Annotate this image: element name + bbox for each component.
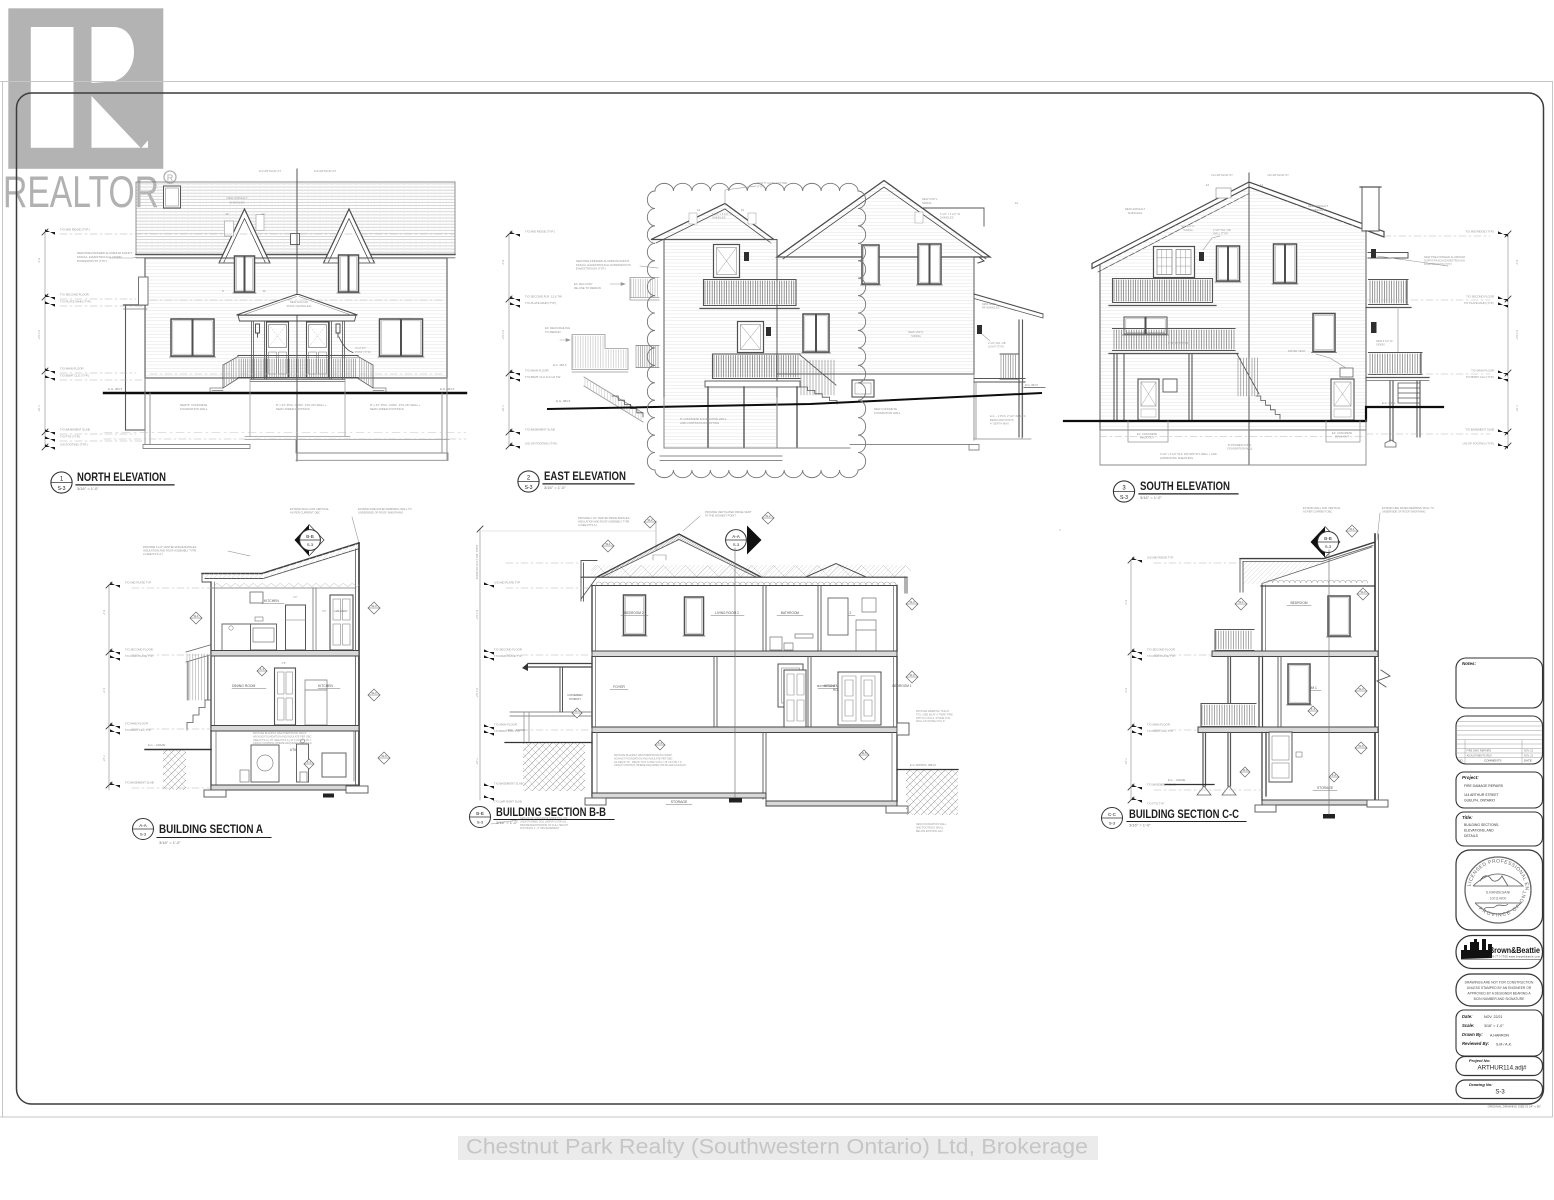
svg-text:4" DEPTH MAX: 4" DEPTH MAX [990, 422, 1009, 426]
svg-text:BEAM AND POSTS: BEAM AND POSTS [990, 418, 1014, 422]
svg-text:W-1: W-1 [1238, 600, 1244, 604]
svg-text:3 1/2" x 3 1/2" W.S. 2X6 SPF S: 3 1/2" x 3 1/2" W.S. 2X6 SPF STL WALL + … [1160, 452, 1217, 456]
svg-text:T/O MID PLATE TYP.: T/O MID PLATE TYP. [125, 581, 152, 585]
svg-text:BATHROOM: BATHROOM [817, 684, 835, 688]
svg-text:Drawing No:: Drawing No: [1469, 1082, 1493, 1087]
svg-text:NOV. 22: NOV. 22 [1524, 750, 1534, 753]
svg-text:WALL AS STONE COV. 6": WALL AS STONE COV. 6" [916, 720, 945, 723]
svg-text:DRYER VENT: DRYER VENT [1288, 349, 1306, 353]
svg-text:W-1: W-1 [605, 542, 611, 546]
svg-text:Project:: Project: [1462, 775, 1479, 780]
svg-text:W-1: W-1 [1349, 527, 1355, 531]
svg-text:7'-10": 7'-10" [1515, 405, 1519, 412]
svg-text:3'0": 3'0" [322, 609, 326, 613]
svg-text:T/O BASEMENT SLAB: T/O BASEMENT SLAB [525, 428, 555, 432]
svg-text:FOYER: FOYER [613, 685, 625, 689]
svg-text:WALK-OUT: WALK-OUT [1335, 435, 1349, 439]
svg-text:100114800: 100114800 [1490, 897, 1507, 901]
svg-text:NEW 5 1/2" W: NEW 5 1/2" W [1376, 339, 1393, 343]
svg-text:BEDROOM 2: BEDROOM 2 [624, 611, 643, 615]
svg-text:F-2: F-2 [658, 741, 663, 745]
svg-text:RE-USE TO REMAIN: RE-USE TO REMAIN [574, 286, 601, 290]
svg-text:BUILDING SECTION A: BUILDING SECTION A [159, 822, 263, 836]
svg-text:114 ARTHUR ST: 114 ARTHUR ST [1211, 173, 1233, 177]
svg-text:7'-10": 7'-10" [475, 758, 479, 765]
svg-text:R: R [167, 173, 174, 183]
svg-text:W-6: W-6 [1242, 768, 1248, 772]
svg-text:NEW ASPHALT: NEW ASPHALT [226, 196, 247, 200]
svg-text:EXTEND WALL FOR VERTICAL: EXTEND WALL FOR VERTICAL [1303, 506, 1341, 510]
svg-text:E.G. 384.5: E.G. 384.5 [553, 363, 567, 367]
svg-text:Date:: Date: [1462, 1014, 1473, 1019]
svg-text:NO.: NO. [1459, 759, 1464, 763]
svg-text:SIDING: SIDING [911, 334, 921, 338]
svg-text:T/O MAIN FLOOR: T/O MAIN FLOOR [494, 723, 517, 727]
svg-text:S-3: S-3 [140, 832, 147, 837]
svg-text:E.G. - 2 PCS. 2"x10" #2 S.P.F.: E.G. - 2 PCS. 2"x10" #2 S.P.F. [990, 414, 1026, 418]
svg-text:PROVIDE 5 1/2" VENTED RIDGE BA: PROVIDE 5 1/2" VENTED RIDGE BAFFLES [143, 545, 197, 549]
svg-text:Project No:: Project No: [1469, 1058, 1491, 1063]
svg-text:BUILDING SECTION C-C: BUILDING SECTION C-C [1129, 807, 1239, 821]
svg-text:EAVESTROUGH (TYP.): EAVESTROUGH (TYP.) [576, 267, 606, 271]
svg-text:SHINGLES: SHINGLES [229, 201, 244, 205]
svg-text:HALLWAY: HALLWAY [334, 609, 347, 613]
svg-text:PORCH: PORCH [569, 697, 580, 701]
svg-text:W-5: W-5 [1358, 744, 1364, 748]
svg-text:2'8": 2'8" [282, 661, 287, 665]
svg-text:T/O SECOND FLR. 12.6 TW: T/O SECOND FLR. 12.6 TW [525, 295, 562, 299]
svg-text:8'-1": 8'-1" [102, 610, 106, 615]
svg-text:T/O BASEMENT SLAB: T/O BASEMENT SLAB [494, 782, 523, 786]
svg-text:T/O LWR BSMT SLAB: T/O LWR BSMT SLAB [494, 800, 522, 804]
svg-text:6"x6" PT POSTS: 6"x6" PT POSTS [1168, 341, 1188, 345]
svg-text:3/16" = 1'-0": 3/16" = 1'-0" [1129, 823, 1151, 828]
svg-text:3/16" = 1'-0": 3/16" = 1'-0" [159, 840, 181, 845]
svg-text:Title:: Title: [1462, 815, 1473, 820]
svg-text:STORAGE: STORAGE [671, 800, 688, 804]
svg-text:LIGHT (TYP.): LIGHT (TYP.) [988, 345, 1004, 349]
svg-text:T/O SECOND FLOOR: T/O SECOND FLOOR [125, 648, 153, 652]
svg-text:W-5: W-5 [381, 754, 387, 758]
svg-text:SIDING: SIDING [922, 201, 932, 205]
svg-text:Chestnut Park Realty (Southwes: Chestnut Park Realty (Southwestern Ontar… [466, 1136, 1088, 1159]
svg-text:EX. CONCRETE: EX. CONCRETE [1137, 432, 1157, 436]
svg-text:DATE: DATE [1524, 759, 1532, 763]
svg-text:2 1/2" DIA. GB: 2 1/2" DIA. GB [988, 341, 1006, 345]
svg-text:116 ARTHUR ST: 116 ARTHUR ST [314, 169, 337, 173]
svg-text:SOUTH ELEVATION: SOUTH ELEVATION [1140, 479, 1230, 493]
svg-text:EXTEND WALL FOR VERTICAL: EXTEND WALL FOR VERTICAL [290, 507, 330, 511]
svg-text:T/O MID RIDGE (TYP.): T/O MID RIDGE (TYP.) [1465, 230, 1494, 234]
svg-text:T/O MAIN FLOOR: T/O MAIN FLOOR [125, 722, 148, 726]
svg-text:T/O BSMT CLG (TYP.): T/O BSMT CLG (TYP.) [60, 374, 89, 378]
svg-text:T/O BSMT CLG TYP.: T/O BSMT CLG TYP. [1147, 729, 1173, 733]
svg-text:114 ARTHUR STREET: 114 ARTHUR STREET [1464, 793, 1499, 797]
svg-text:5 1/2" x 5 1/2" W: 5 1/2" x 5 1/2" W [712, 212, 732, 216]
svg-text:CRACK CONTROL WHERE REQUIRED I: CRACK CONTROL WHERE REQUIRED INSTALLED A… [614, 764, 686, 767]
svg-text:C-C: C-C [1108, 812, 1117, 817]
svg-text:Notes:: Notes: [1462, 661, 1477, 666]
svg-text:T/O MAIN FLOOR: T/O MAIN FLOOR [1471, 369, 1494, 373]
svg-text:FOOTINGS 4 - 9" MIN BASEMENT: FOOTINGS 4 - 9" MIN BASEMENT [520, 827, 560, 830]
svg-text:ELEVATIONS, AND: ELEVATIONS, AND [1464, 829, 1494, 833]
svg-text:T/O BSMT CLG (TYP.): T/O BSMT CLG (TYP.) [1466, 375, 1494, 379]
svg-text:NEW PRE-FINISHED ALUMINUM: NEW PRE-FINISHED ALUMINUM [1424, 255, 1466, 259]
svg-text:U/S MID RIDGE TYP.: U/S MID RIDGE TYP. [1147, 556, 1174, 560]
svg-text:12: 12 [697, 208, 701, 212]
svg-text:S-3: S-3 [1120, 495, 1128, 501]
svg-text:Reviewed By:: Reviewed By: [1462, 1041, 1490, 1046]
svg-text:T/O MAIN PLATE TYP.: T/O MAIN PLATE TYP. [494, 654, 523, 658]
svg-text:7'-10": 7'-10" [501, 405, 505, 412]
svg-text:T/O BASEMENT SLAB: T/O BASEMENT SLAB [125, 781, 154, 785]
svg-text:WALK-OUT: WALK-OUT [1140, 436, 1154, 440]
svg-text:EXTEND FIRE RATED DEMISING WAL: EXTEND FIRE RATED DEMISING WALL TO [1382, 506, 1434, 510]
svg-text:S-3: S-3 [477, 820, 484, 825]
svg-text:E.G. 384.5: E.G. 384.5 [1025, 383, 1038, 387]
svg-text:APPROVED BY A DESIGNER BEARING: APPROVED BY A DESIGNER BEARING A [1467, 992, 1531, 996]
svg-text:W-1: W-1 [193, 614, 199, 618]
svg-text:T/O MAIN FLOOR: T/O MAIN FLOOR [60, 367, 84, 371]
svg-text:BELOW EXISTING ADJ.: BELOW EXISTING ADJ. [916, 830, 944, 833]
svg-text:S-3: S-3 [307, 542, 314, 547]
svg-text:S-3: S-3 [1495, 1090, 1505, 1096]
svg-text:12: 12 [1015, 201, 1019, 205]
svg-text:LIVING ROOM 2: LIVING ROOM 2 [715, 611, 739, 615]
svg-text:ELEV. 397.2 U/S OF ROOF: ELEV. 397.2 U/S OF ROOF [475, 545, 479, 580]
svg-text:TO REMAIN: TO REMAIN [545, 330, 561, 334]
svg-text:FOUNDATION WALL: FOUNDATION WALL [874, 411, 901, 415]
svg-text:AT THE HIGHEST POINT: AT THE HIGHEST POINT [705, 514, 736, 518]
svg-text:114 ARTHUR ST: 114 ARTHUR ST [259, 169, 282, 173]
svg-text:POST (TYP.): POST (TYP.) [355, 350, 371, 354]
svg-text:E.G. 386.4: E.G. 386.4 [1382, 401, 1396, 405]
svg-text:A (SEE P.P.S.A.): A (SEE P.P.S.A.) [143, 552, 163, 556]
svg-text:E.G. APPROX. 386.10: E.G. APPROX. 386.10 [910, 763, 937, 767]
svg-text:U/S MID PLATE TYP.: U/S MID PLATE TYP. [494, 581, 521, 585]
svg-text:7'-10": 7'-10" [1124, 758, 1128, 765]
svg-text:DINING ROOM: DINING ROOM [232, 684, 256, 688]
svg-text:12: 12 [262, 289, 266, 293]
svg-text:F-2: F-2 [1332, 773, 1337, 777]
svg-text:FIRE DAMAGE REPAIRS: FIRE DAMAGE REPAIRS [1464, 784, 1504, 788]
svg-text:3/16" = 1'-0": 3/16" = 1'-0" [77, 486, 99, 491]
svg-text:S-3: S-3 [524, 485, 532, 491]
svg-text:INSULATION AND ROOF ASSEMBLY T: INSULATION AND ROOF ASSEMBLY TYPE [143, 549, 196, 553]
svg-text:E.G. - GRADE: E.G. - GRADE [148, 743, 166, 747]
svg-text:3/16" = 1'-0": 3/16" = 1'-0" [1484, 1024, 1504, 1028]
svg-text:A (SEE P.P.S.A.): A (SEE P.P.S.A.) [578, 523, 597, 527]
svg-text:T/O SECOND FLOOR: T/O SECOND FLOOR [494, 648, 522, 652]
svg-text:E.G. 384.5: E.G. 384.5 [108, 387, 123, 391]
svg-text:Brown&Beattie: Brown&Beattie [1489, 945, 1540, 955]
svg-text:NEW UNDER FOOTINGS: NEW UNDER FOOTINGS [370, 407, 404, 411]
svg-text:COMMENTS: COMMENTS [1484, 759, 1502, 763]
svg-text:8" POURED CONC.: 8" POURED CONC. [1228, 443, 1252, 447]
svg-text:SHINGLES: SHINGLES [712, 216, 726, 220]
svg-text:7'-10": 7'-10" [37, 405, 41, 412]
svg-text:T/O BSMT CLG 8-0 1/2 TW: T/O BSMT CLG 8-0 1/2 TW [525, 375, 561, 379]
svg-text:UNDERSIDE OF ROOF SHEATHING: UNDERSIDE OF ROOF SHEATHING [358, 511, 403, 515]
svg-text:NORTH ELEVATION: NORTH ELEVATION [77, 470, 166, 484]
svg-text:W-3: W-3 [371, 691, 377, 695]
svg-text:BATHROOM: BATHROOM [781, 611, 800, 615]
svg-text:BCIN NUMBER AND SIGNATURE: BCIN NUMBER AND SIGNATURE [1474, 997, 1525, 1001]
svg-text:NEW SHED: NEW SHED [982, 302, 996, 306]
svg-text:3'0": 3'0" [293, 595, 297, 599]
svg-text:F-1: F-1 [1311, 707, 1316, 711]
svg-text:919-777-7700 www.brownbeattie: 919-777-7700 www.brownbeattie.com [1489, 955, 1540, 959]
svg-text:Scale:: Scale: [1462, 1023, 1475, 1028]
svg-text:NEW UNDER FOOTINGS: NEW UNDER FOOTINGS [276, 407, 310, 411]
svg-text:A.HARRON: A.HARRON [1490, 1034, 1509, 1038]
svg-text:B-B: B-B [1324, 536, 1332, 541]
svg-text:12: 12 [261, 212, 265, 216]
svg-text:ROOF (SHINGLES): ROOF (SHINGLES) [287, 304, 312, 308]
svg-text:RF-SHINGLES: RF-SHINGLES [982, 305, 1000, 309]
svg-text:5 1/2" x 5 1/2" W: 5 1/2" x 5 1/2" W [940, 212, 960, 216]
svg-text:ORIGINAL DRAWING SIZE IS 24" x: ORIGINAL DRAWING SIZE IS 24" x 36" [1488, 1105, 1541, 1109]
svg-text:3/16" = 1'-0": 3/16" = 1'-0" [1140, 495, 1162, 500]
svg-text:T/O BASEMENT SLAB: T/O BASEMENT SLAB [60, 428, 90, 432]
svg-text:DRAWINGS ARE NOT FOR CONSTRUCT: DRAWINGS ARE NOT FOR CONSTRUCTION [1465, 981, 1534, 985]
svg-text:12: 12 [225, 212, 229, 216]
svg-text:9'-0": 9'-0" [102, 688, 106, 693]
svg-text:SOFFIT/FASCIA EAVESTROUGH: SOFFIT/FASCIA EAVESTROUGH [1424, 259, 1465, 263]
svg-text:NOV. 23: NOV. 23 [1524, 754, 1534, 757]
svg-text:8'-1": 8'-1" [1124, 600, 1128, 605]
svg-text:T/O BSMT CLG TYP.: T/O BSMT CLG TYP. [494, 729, 520, 733]
svg-text:EXTEND FIRE RATED DEMISING WAL: EXTEND FIRE RATED DEMISING WALL TO [358, 507, 412, 511]
svg-text:F-1: F-1 [307, 760, 312, 764]
svg-text:T/O MAIN FLOOR: T/O MAIN FLOOR [525, 369, 549, 373]
svg-text:AS PER CURRENT OBC: AS PER CURRENT OBC [1303, 510, 1332, 514]
svg-text:Drawn By:: Drawn By: [1462, 1032, 1483, 1037]
svg-text:S.M / A.K.: S.M / A.K. [1496, 1043, 1512, 1047]
svg-text:EX. CONCRETE: EX. CONCRETE [1332, 431, 1352, 435]
svg-text:S-3: S-3 [1109, 821, 1116, 826]
svg-text:PROVIDE 2 1/2" VENTED RIDGE BA: PROVIDE 2 1/2" VENTED RIDGE BAFFLES [578, 516, 630, 520]
svg-text:U/S OF FOOTING (TYP.): U/S OF FOOTING (TYP.) [1463, 442, 1494, 446]
svg-text:8'-1": 8'-1" [501, 260, 505, 265]
svg-text:(TYP.): (TYP.) [757, 185, 765, 189]
svg-text:WALL (TYP.): WALL (TYP.) [1213, 232, 1228, 236]
svg-text:W-2: W-2 [765, 514, 771, 518]
svg-text:KITCHEN: KITCHEN [264, 599, 279, 603]
svg-text:GUELPH, ONTARIO: GUELPH, ONTARIO [1464, 799, 1495, 803]
svg-text:S-3: S-3 [1325, 544, 1332, 549]
svg-text:12: 12 [1206, 183, 1210, 187]
svg-text:12: 12 [741, 208, 745, 212]
svg-text:PROVIDE VENTILATED RIDGE VENT: PROVIDE VENTILATED RIDGE VENT [705, 510, 752, 514]
svg-text:8'-1": 8'-1" [1515, 260, 1519, 265]
svg-text:T/O FTG TYP.: T/O FTG TYP. [1147, 802, 1165, 806]
svg-text:U/S OF FOOTING (TYP.): U/S OF FOOTING (TYP.) [525, 442, 557, 446]
svg-text:DOWNSPOUTS (TYP.): DOWNSPOUTS (TYP.) [1424, 262, 1452, 266]
svg-text:NOV. 22/21: NOV. 22/21 [1484, 1015, 1502, 1019]
svg-text:T/O MAIN FLOOR: T/O MAIN FLOOR [1147, 723, 1170, 727]
svg-text:7'-10": 7'-10" [102, 755, 106, 762]
svg-text:T/O SECOND FLOOR: T/O SECOND FLOOR [1466, 295, 1494, 299]
svg-text:W-3: W-3 [1360, 590, 1366, 594]
svg-text:S.RANDESANI: S.RANDESANI [1486, 891, 1510, 895]
svg-text:12: 12 [1260, 183, 1264, 187]
svg-text:HORIZONTAL SHEATHING: HORIZONTAL SHEATHING [1160, 456, 1193, 460]
svg-text:T/O SECOND FLOOR: T/O SECOND FLOOR [60, 293, 89, 297]
svg-text:W-3: W-3 [909, 673, 915, 677]
svg-text:BUILDING SECTIONS,: BUILDING SECTIONS, [1464, 823, 1499, 827]
svg-text:8'-1": 8'-1" [37, 258, 41, 263]
svg-text:T/O BASEMENT SLAB: T/O BASEMENT SLAB [1465, 428, 1494, 432]
svg-text:T/O SECOND FLOOR: T/O SECOND FLOOR [1147, 648, 1175, 652]
svg-text:9'-0 1/2": 9'-0 1/2" [501, 330, 505, 340]
svg-text:BEDROOM 1: BEDROOM 1 [892, 684, 911, 688]
svg-text:AS PER CURRENT OBC: AS PER CURRENT OBC [290, 511, 320, 515]
svg-text:ARTHUR114.adj#: ARTHUR114.adj# [1478, 1065, 1528, 1072]
svg-text:T/O PLATE MAIN (TYP.): T/O PLATE MAIN (TYP.) [60, 300, 91, 304]
svg-text:NEW 5" ALUM. GUTTER: NEW 5" ALUM. GUTTER [757, 181, 787, 185]
svg-text:A-A: A-A [139, 823, 147, 828]
svg-text:W-4: W-4 [574, 709, 580, 713]
svg-text:FOUNDATION WALL: FOUNDATION WALL [180, 407, 208, 411]
svg-text:CRACK CONTROL WHERE REQUIRED B: CRACK CONTROL WHERE REQUIRED BETWEEN [253, 742, 312, 745]
svg-text:E.G. 384.5: E.G. 384.5 [556, 399, 571, 403]
svg-text:W-3: W-3 [1358, 687, 1364, 691]
svg-text:A-A: A-A [732, 534, 740, 539]
svg-text:KITCHEN: KITCHEN [318, 684, 333, 688]
svg-text:U/S FOOTING (TYP.): U/S FOOTING (TYP.) [60, 443, 88, 447]
svg-text:T/O PLATE MAIN (TYP.): T/O PLATE MAIN (TYP.) [1464, 301, 1494, 305]
svg-text:T/O FTG (TYP.): T/O FTG (TYP.) [60, 435, 80, 439]
svg-text:W-3: W-3 [371, 604, 377, 608]
svg-text:9'-0 1/2": 9'-0 1/2" [475, 688, 479, 698]
svg-text:3/16" = 1'-0": 3/16" = 1'-0" [544, 485, 566, 490]
svg-text:T/O MID RIDGE (TYP.): T/O MID RIDGE (TYP.) [60, 228, 90, 232]
svg-text:E.G. - GRADE: E.G. - GRADE [1168, 778, 1186, 782]
svg-text:T/O MAIN PLATE TYP.: T/O MAIN PLATE TYP. [1147, 654, 1176, 658]
svg-text:W-5: W-5 [861, 751, 867, 755]
svg-text:S-3: S-3 [733, 542, 740, 547]
svg-text:AND CONTINUOUS FOOTING: AND CONTINUOUS FOOTING [680, 421, 719, 425]
svg-text:W-2: W-2 [647, 518, 653, 522]
svg-text:INSULATION AND ROOF ASSEMBLY T: INSULATION AND ROOF ASSEMBLY TYPE [578, 520, 630, 524]
svg-text:3/16" = 1'-0": 3/16" = 1'-0" [496, 820, 518, 825]
svg-text:T/O BSMT CLG TYP.: T/O BSMT CLG TYP. [125, 728, 151, 732]
svg-text:2 1/2" DIA. GB: 2 1/2" DIA. GB [1213, 228, 1231, 232]
svg-text:116 ARTHUR ST: 116 ARTHUR ST [1267, 173, 1289, 177]
svg-text:B-B: B-B [306, 534, 314, 539]
svg-text:FOUNDATION WALL: FOUNDATION WALL [1227, 447, 1253, 451]
svg-text:UNDERSIDE OF ROOF SHEATHING: UNDERSIDE OF ROOF SHEATHING [1382, 510, 1425, 514]
svg-text:8'-1 1/2": 8'-1 1/2" [475, 610, 479, 620]
svg-text:DETAILS: DETAILS [1464, 834, 1479, 838]
svg-text:STORAGE: STORAGE [1317, 786, 1334, 790]
svg-text:DOWNSPOUTS (TYP.): DOWNSPOUTS (TYP.) [77, 259, 107, 263]
svg-text:T/O MAIN PLATE TYP.: T/O MAIN PLATE TYP. [125, 654, 154, 658]
svg-text:ADJUSTMENTS REV.: ADJUSTMENTS REV. [1467, 753, 1493, 757]
svg-text:UNLESS STAMPED BY AN ENGINEER: UNLESS STAMPED BY AN ENGINEER OR [1467, 986, 1532, 990]
svg-text:EAST ELEVATION: EAST ELEVATION [544, 469, 626, 483]
svg-text:SIDING: SIDING [1376, 343, 1385, 347]
svg-text:SHINGLES: SHINGLES [940, 216, 954, 220]
svg-text:9'-0": 9'-0" [1124, 688, 1128, 693]
svg-text:F-1: F-1 [260, 667, 265, 671]
svg-text:FIRE DMG REPAIRS: FIRE DMG REPAIRS [1467, 749, 1492, 753]
svg-text:W-3: W-3 [909, 600, 915, 604]
svg-text:T/O MID RIDGE (TYP.): T/O MID RIDGE (TYP.) [525, 230, 555, 234]
svg-text:9'-0 1/2": 9'-0 1/2" [1515, 330, 1519, 340]
svg-text:BEDROOM: BEDROOM [1290, 601, 1307, 605]
svg-text:B-B: B-B [476, 811, 484, 816]
svg-text:T/O PLATE MAIN (TYP.): T/O PLATE MAIN (TYP.) [525, 301, 556, 305]
svg-text:S-3: S-3 [57, 486, 65, 492]
svg-text:SHINGLES: SHINGLES [1128, 211, 1143, 215]
svg-text:9'-0 1/2": 9'-0 1/2" [37, 330, 41, 340]
